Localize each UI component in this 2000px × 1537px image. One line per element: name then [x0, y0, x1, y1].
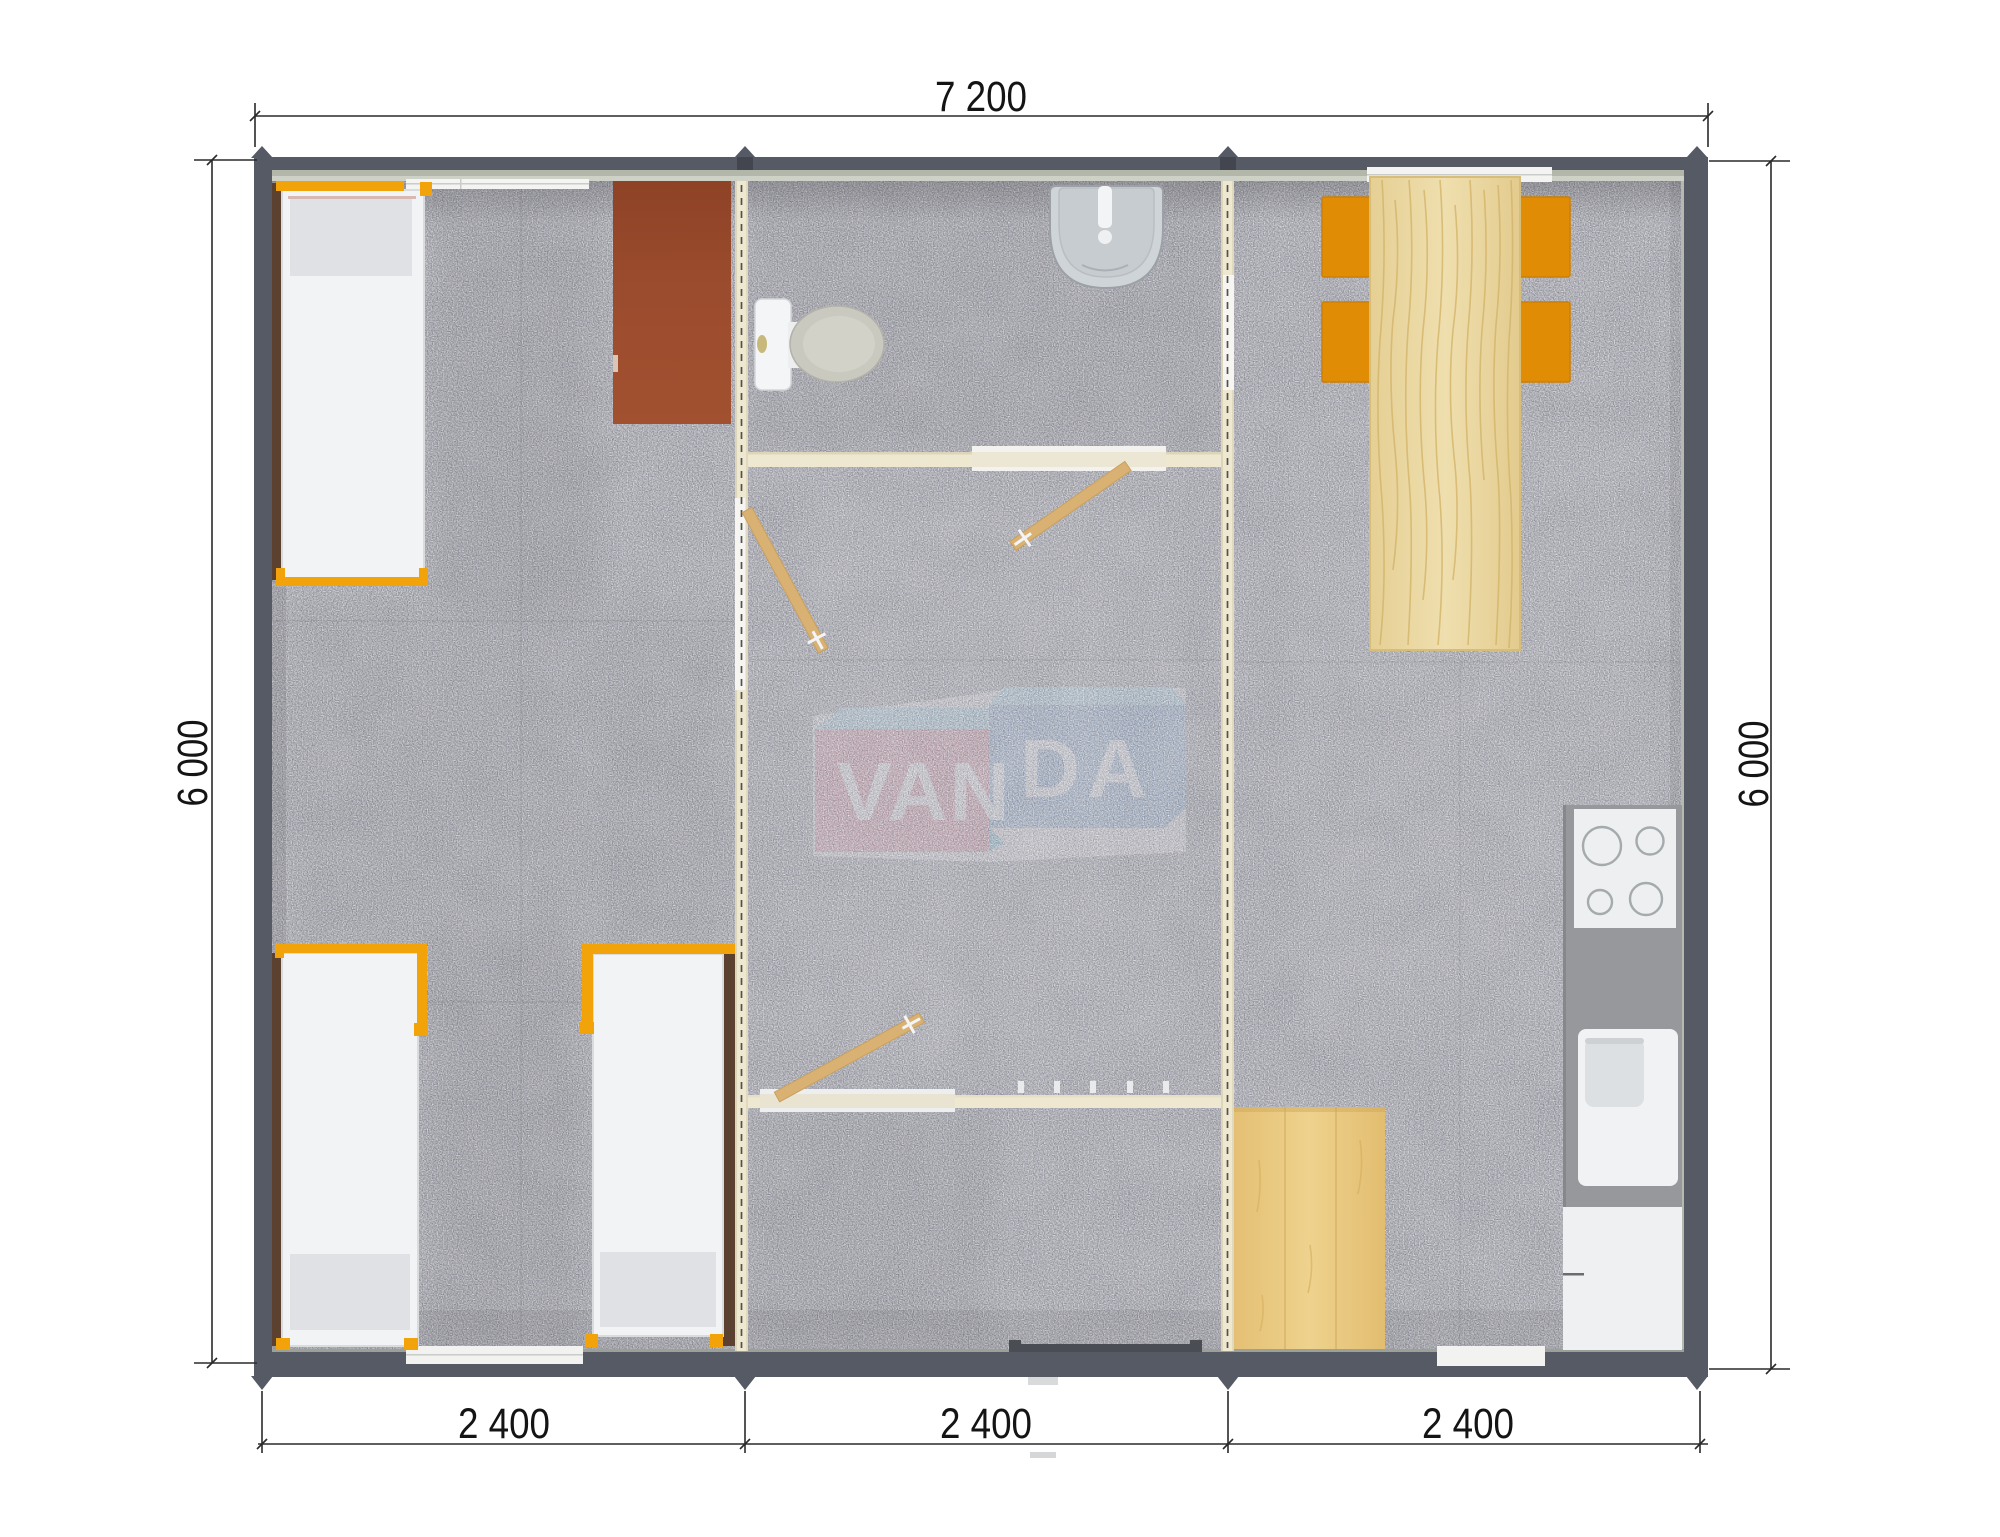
svg-text:2 400: 2 400 [458, 1400, 550, 1448]
svg-text:2 400: 2 400 [1422, 1400, 1514, 1448]
svg-text:2 400: 2 400 [940, 1400, 1032, 1448]
svg-text:6 000: 6 000 [169, 720, 217, 807]
svg-text:7 200: 7 200 [935, 73, 1027, 121]
svg-text:6 000: 6 000 [1730, 721, 1778, 808]
